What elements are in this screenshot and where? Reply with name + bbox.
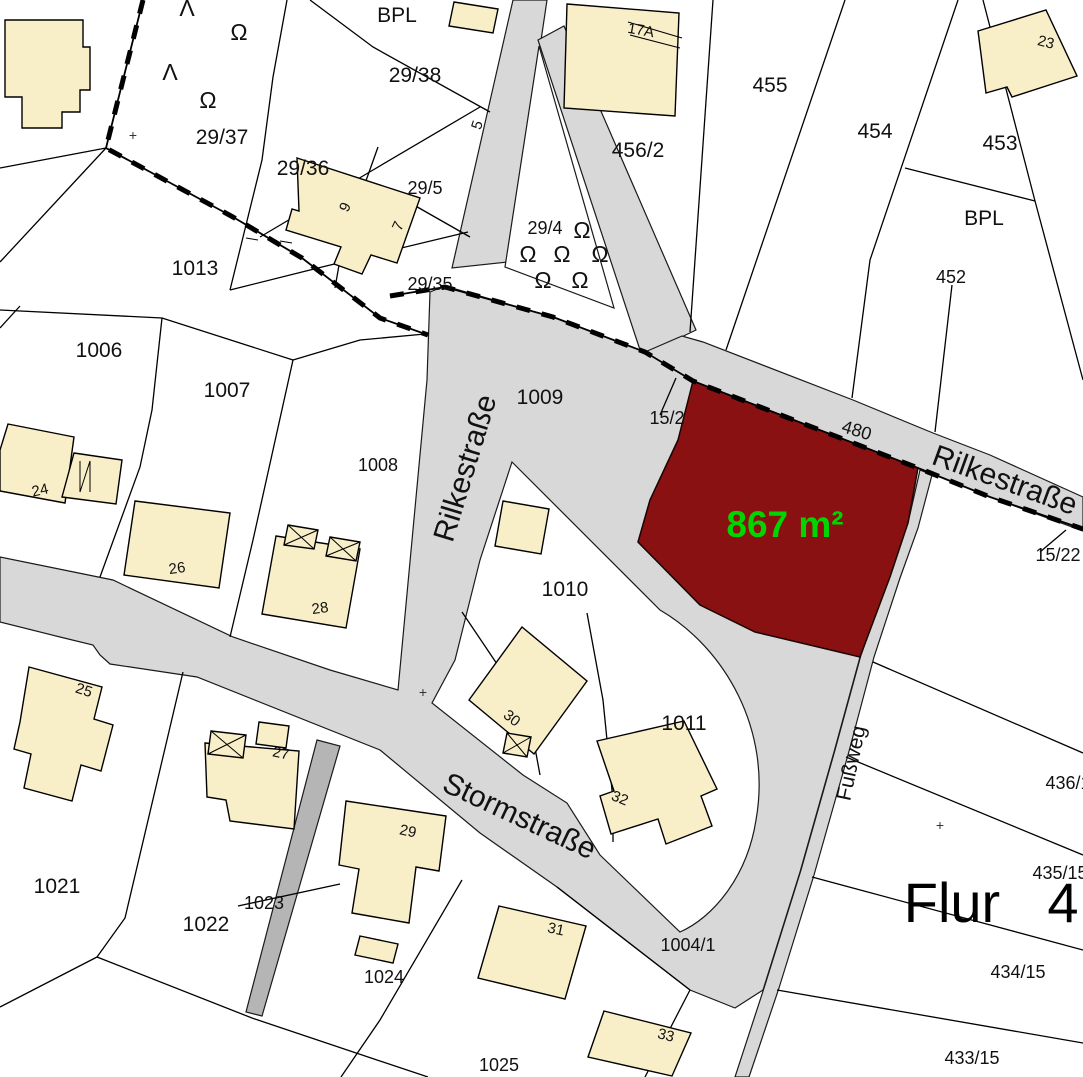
building-17a [564,4,679,116]
parcel-label: 1011 [661,712,706,735]
tree-icon: Ω [573,217,590,243]
parcel-label: 433/15 [944,1048,999,1068]
survey-cross-icon: + [129,127,137,143]
parcel-label: 1007 [204,379,251,402]
parcel-label: 29/5 [407,178,442,198]
parcel-label: 1022 [183,913,230,936]
parcel-label: 1021 [34,875,81,898]
highlight-area-label: 867 m² [726,504,843,545]
tree-icon: Ω [534,267,551,293]
cadastral-map[interactable]: Ω Ω Ω Ω Ω Ω Ω Ω Λ Λ + + + BPL 29/38 29/3… [0,0,1083,1077]
parcel-label: 1025 [479,1055,519,1075]
building-1010-shed [495,501,549,554]
house-number: 27 [271,743,291,763]
house-number: 26 [168,559,187,578]
parcel-label: 455 [752,74,787,97]
survey-cross-icon: + [419,684,427,700]
parcel-label: 436/1 [1045,773,1083,793]
zone-label-bpl-left: BPL [377,4,417,27]
conifer-icon: Λ [162,59,178,85]
parcel-label: 1006 [76,339,123,362]
parcel-label: 454 [857,120,892,143]
parcel-label: 1024 [364,967,404,987]
parcel-label: 15/2 [649,408,684,428]
parcel-label: 456/2 [612,139,665,162]
tree-icon: Ω [571,267,588,293]
parcel-label: 29/38 [389,64,442,87]
survey-cross-icon: + [936,817,944,833]
flur-label: Flur 4 [904,871,1079,934]
tree-icon: Ω [519,241,536,267]
flur-word: Flur [904,871,1000,934]
zone-label-bpl-right: BPL [964,207,1004,230]
parcel-label: 15/22 [1035,545,1080,565]
house-number: 31 [546,919,566,939]
house-number: 28 [311,599,330,618]
house-number: 24 [30,480,50,500]
map-canvas[interactable]: Ω Ω Ω Ω Ω Ω Ω Ω Λ Λ + + + BPL 29/38 29/3… [0,0,1083,1077]
tree-icon: Ω [553,241,570,267]
parcel-label: 29/36 [277,157,330,180]
conifer-icon: Λ [179,0,195,21]
tree-icon: Ω [591,241,608,267]
tree-icon: Ω [230,19,247,45]
flur-number: 4 [1047,871,1078,934]
parcel-label: 1008 [358,455,398,475]
house-number: 29 [398,821,418,841]
parcel-label: 1023 [244,893,284,913]
parcel-label: 1004/1 [660,935,715,955]
parcel-label: 452 [936,267,966,287]
parcel-label: 29/4 [527,218,562,238]
parcel-label: 1009 [517,386,564,409]
parcel-label: 1013 [172,257,219,280]
parcel-label: 29/37 [196,126,249,149]
parcel-label: 1010 [542,578,589,601]
building-27-annex [256,722,289,748]
parcel-label: 434/15 [990,962,1045,982]
tree-icon: Ω [199,87,216,113]
parcel-label: 29/35 [407,274,452,294]
parcel-label: 453 [982,132,1017,155]
